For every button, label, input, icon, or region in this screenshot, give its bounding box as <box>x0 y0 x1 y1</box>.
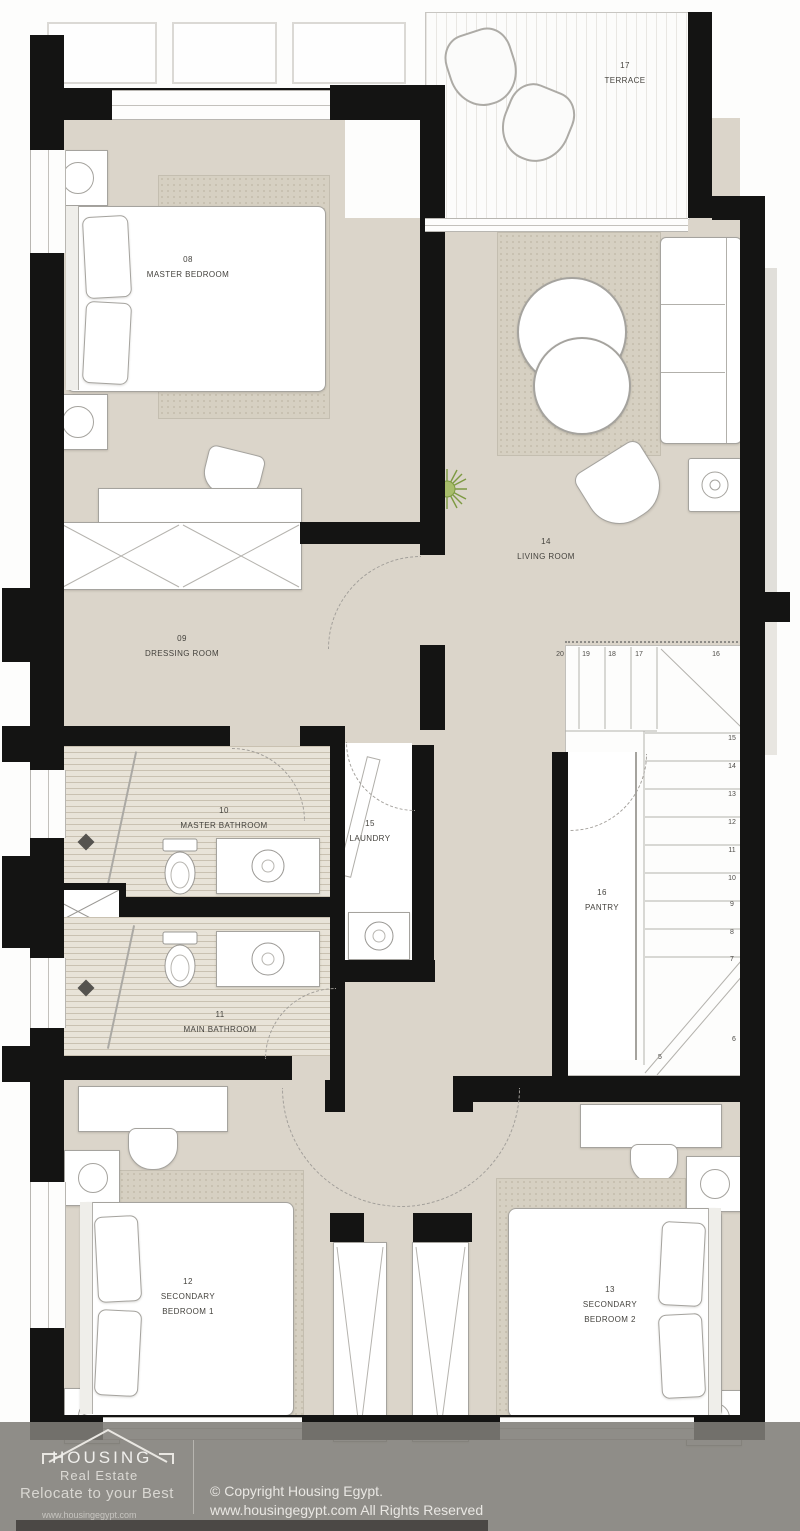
bed-headboard <box>80 1202 93 1414</box>
stair-step-number: 13 <box>724 791 740 798</box>
brand-subtitle: Real Estate <box>60 1468 138 1483</box>
room-number: 11 <box>160 1007 280 1022</box>
room-name: MASTER BATHROOM <box>180 821 267 830</box>
room-label-laundry: 15 LAUNDRY <box>310 816 430 846</box>
wall <box>125 897 345 917</box>
copyright-line-1: © Copyright Housing Egypt. <box>210 1482 483 1501</box>
wall-pier <box>2 856 30 948</box>
stair-step-number: 5 <box>652 1054 668 1061</box>
stair-step-number: 10 <box>724 875 740 882</box>
wardrobe-door-marks <box>61 523 301 589</box>
window <box>30 958 66 1028</box>
sink-icon <box>250 941 286 977</box>
wall <box>712 196 765 220</box>
room-label-main-bathroom: 11 MAIN BATHROOM <box>160 1007 280 1037</box>
desk <box>580 1104 722 1148</box>
wall-pier <box>765 592 790 622</box>
stair-step-number: 17 <box>631 651 647 658</box>
wall <box>30 726 230 746</box>
exterior-ledge <box>765 622 777 755</box>
room-number: 08 <box>128 252 248 267</box>
wall <box>740 218 765 1440</box>
window <box>30 150 66 253</box>
stair-step-number: 15 <box>724 735 740 742</box>
room-name: LAUNDRY <box>350 834 391 843</box>
wall <box>345 960 435 982</box>
room-name: TERRACE <box>604 76 645 85</box>
wall <box>420 645 445 730</box>
stair-step-number: 11 <box>724 847 740 854</box>
floor-plan: 20 19 18 17 16 15 14 13 12 11 10 9 8 7 6… <box>0 0 800 1531</box>
room-label-master-bathroom: 10 MASTER BATHROOM <box>164 803 284 833</box>
wall <box>413 1213 472 1242</box>
room-number: 15 <box>310 816 430 831</box>
room-name: MAIN BATHROOM <box>183 1025 256 1034</box>
window <box>112 90 330 120</box>
room-name: PANTRY <box>585 903 619 912</box>
parapet-planter <box>172 22 277 84</box>
bed-headboard <box>708 1208 721 1416</box>
sofa <box>660 237 742 444</box>
copyright-line-2: www.housingegypt.com All Rights Reserved <box>210 1501 483 1520</box>
room-name: SECONDARY <box>550 1297 670 1312</box>
footer-bar: HOUSING Real Estate Relocate to your Bes… <box>0 1422 800 1531</box>
room-label-dressing-room: 09 DRESSING ROOM <box>122 631 242 661</box>
room-number: 14 <box>486 534 606 549</box>
sink-icon <box>250 848 286 884</box>
wardrobe-door-marks <box>413 1243 468 1441</box>
stair-step-number: 20 <box>552 651 568 658</box>
sofa-cushion-line <box>661 372 725 373</box>
room-number: 13 <box>550 1282 670 1297</box>
sofa-cushion-line <box>661 304 725 305</box>
lamp-icon <box>62 406 94 438</box>
wall-pier <box>2 588 30 662</box>
room-label-living-room: 14 LIVING ROOM <box>486 534 606 564</box>
wall <box>330 1213 364 1242</box>
room-name: MASTER BEDROOM <box>147 270 230 279</box>
room-name: BEDROOM 1 <box>128 1304 248 1319</box>
exterior-ledge <box>765 268 777 592</box>
window <box>30 770 66 838</box>
wall <box>300 522 420 544</box>
stair-step-number: 9 <box>724 901 740 908</box>
wall-pier <box>2 726 30 762</box>
brand-name: HOUSING <box>52 1448 152 1468</box>
stair-step-number: 18 <box>604 651 620 658</box>
hall-wardrobe <box>412 1242 469 1442</box>
room-name: LIVING ROOM <box>517 552 575 561</box>
room-name: BEDROOM 2 <box>550 1312 670 1327</box>
stair-step-number: 8 <box>724 929 740 936</box>
wall <box>30 1056 292 1080</box>
room-name: SECONDARY <box>128 1289 248 1304</box>
stair-step-number: 12 <box>724 819 740 826</box>
coffee-table <box>533 337 631 435</box>
room-number: 12 <box>128 1274 248 1289</box>
room-name: DRESSING ROOM <box>145 649 219 658</box>
room-label-pantry: 16 PANTRY <box>542 885 662 915</box>
room-number: 10 <box>164 803 284 818</box>
pillow <box>82 215 132 299</box>
pillow <box>82 301 132 385</box>
stair-step-number: 16 <box>708 651 724 658</box>
terrace-glass-door <box>425 218 688 232</box>
washing-machine-icon <box>348 912 410 960</box>
room-number: 09 <box>122 631 242 646</box>
wall <box>412 745 434 982</box>
toilet-icon <box>160 931 200 989</box>
stair-step-number: 19 <box>578 651 594 658</box>
room-number: 16 <box>542 885 662 900</box>
toilet-icon <box>160 838 200 896</box>
lamp-icon <box>78 1163 108 1193</box>
wall <box>420 85 445 555</box>
wall <box>688 12 712 218</box>
stair-step-number: 14 <box>724 763 740 770</box>
pillow <box>94 1309 142 1397</box>
wardrobe-door-marks <box>334 1243 386 1441</box>
window <box>30 1182 66 1328</box>
parapet-planter <box>292 22 406 84</box>
footer-divider <box>193 1440 194 1514</box>
room-number: 17 <box>565 58 685 73</box>
wardrobe <box>60 522 302 590</box>
stair-step-number: 7 <box>724 956 740 963</box>
room-label-terrace: 17 TERRACE <box>565 58 685 88</box>
brand-tagline: Relocate to your Best <box>20 1485 174 1502</box>
side-table <box>688 458 742 512</box>
lamp-icon <box>689 459 741 511</box>
hall-wardrobe <box>333 1242 387 1442</box>
lamp-icon <box>62 162 94 194</box>
room-label-master-bedroom: 08 MASTER BEDROOM <box>128 252 248 282</box>
brand-url: www.housingegypt.com <box>42 1510 137 1520</box>
exterior-notch <box>345 118 425 218</box>
copyright-text: © Copyright Housing Egypt. www.housingeg… <box>210 1482 483 1520</box>
desk <box>78 1086 228 1132</box>
wall-pier <box>2 1046 30 1082</box>
bed-headboard <box>66 206 79 390</box>
lamp-icon <box>700 1169 730 1199</box>
bottom-dark-strip <box>16 1520 488 1531</box>
sofa-backrest <box>726 238 741 443</box>
room-label-secondary-bedroom-1: 12 SECONDARY BEDROOM 1 <box>128 1274 248 1320</box>
room-label-secondary-bedroom-2: 13 SECONDARY BEDROOM 2 <box>550 1282 670 1328</box>
